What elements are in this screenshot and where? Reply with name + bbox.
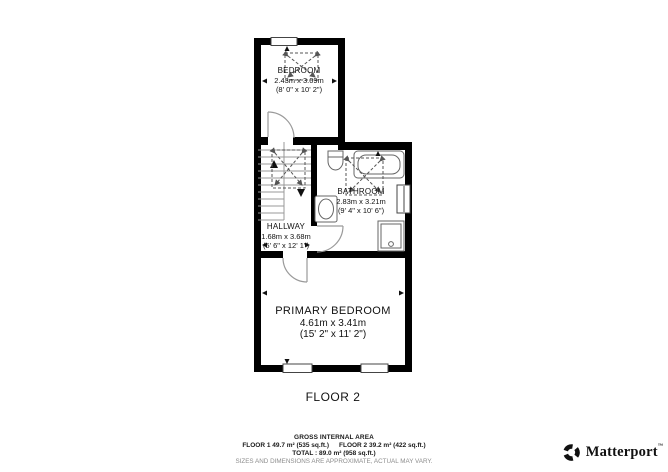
room-dim-imperial: (5' 6" x 12' 1") [221, 241, 351, 251]
matterport-logo: Matterport™ [562, 441, 663, 463]
wall-top-seg1 [254, 38, 272, 45]
stairs-left-treads [258, 150, 284, 220]
wall-main-top [338, 142, 412, 150]
window-bedroom-top [271, 38, 297, 46]
area-legend: GROSS INTERNAL AREA FLOOR 1 49.7 m² (535… [134, 434, 534, 466]
toilet [328, 151, 343, 170]
wall-bedroom-bottom-seg2 [293, 137, 345, 145]
floor-title: FLOOR 2 [273, 390, 393, 404]
wall-top-seg2 [296, 38, 345, 45]
floorplan-page: { "floor_plan": { "floor_label": "FLOOR … [0, 0, 668, 472]
ceiling-marker-stairs [272, 150, 305, 188]
matterport-logo-text: Matterport™ [586, 444, 663, 461]
dim-arrow-primary-left [262, 291, 267, 296]
room-dim-imperial: (8' 0" x 10' 2") [234, 85, 364, 95]
room-name: BATHROOM [296, 187, 426, 197]
door-bedroom [268, 112, 294, 138]
wall-primary-top-seg1 [254, 251, 283, 258]
room-label-bathroom: BATHROOM 2.83m x 3.21m (9' 4" x 10' 6") [296, 187, 426, 216]
legend-floor2-area: FLOOR 2 39.2 m² (422 sq.ft.) [339, 442, 426, 449]
wall-bedroom-bottom-seg1 [254, 137, 268, 145]
legend-total-area: TOTAL : 89.0 m² (958 sq.ft.) [134, 450, 534, 458]
stairs-right-treads [284, 150, 311, 185]
room-label-hallway: HALLWAY 1.68m x 3.68m (5' 6" x 12' 1") [221, 222, 351, 251]
room-dim-imperial: (15' 2" x 11' 2") [253, 329, 413, 341]
room-name: HALLWAY [221, 222, 351, 232]
shower [378, 221, 404, 251]
matterport-logo-icon [562, 443, 581, 462]
room-name: BEDROOM [234, 66, 364, 76]
dim-arrow-bedroom-top [285, 46, 290, 51]
legend-floor1-area: FLOOR 1 49.7 m² (535 sq.ft.) [242, 442, 329, 449]
room-dim-metric: 4.61m x 3.41m [253, 318, 413, 330]
room-label-primary-bedroom: PRIMARY BEDROOM 4.61m x 3.41m (15' 2" x … [253, 306, 413, 341]
legend-floor-areas: FLOOR 1 49.7 m² (535 sq.ft.)FLOOR 2 39.2… [134, 442, 534, 450]
door-primary-bedroom [283, 258, 307, 282]
window-primary-right [361, 364, 388, 373]
room-dim-imperial: (9' 4" x 10' 6") [296, 206, 426, 216]
room-label-bedroom: BEDROOM 2.43m x 3.09m (8' 0" x 10' 2") [234, 66, 364, 95]
room-name: PRIMARY BEDROOM [253, 306, 413, 318]
wall-primary-top-seg2 [307, 251, 412, 258]
room-dim-metric: 2.43m x 3.09m [234, 76, 364, 86]
dim-arrow-primary-bottom [285, 359, 290, 364]
trademark-mark: ™ [658, 444, 663, 449]
room-dim-metric: 2.83m x 3.21m [296, 197, 426, 207]
legend-disclaimer: SIZES AND DIMENSIONS ARE APPROXIMATE, AC… [134, 458, 534, 466]
legend-title: GROSS INTERNAL AREA [134, 434, 534, 442]
dim-arrow-primary-right [399, 291, 404, 296]
window-primary-left [283, 364, 312, 373]
room-dim-metric: 1.68m x 3.68m [221, 232, 351, 242]
